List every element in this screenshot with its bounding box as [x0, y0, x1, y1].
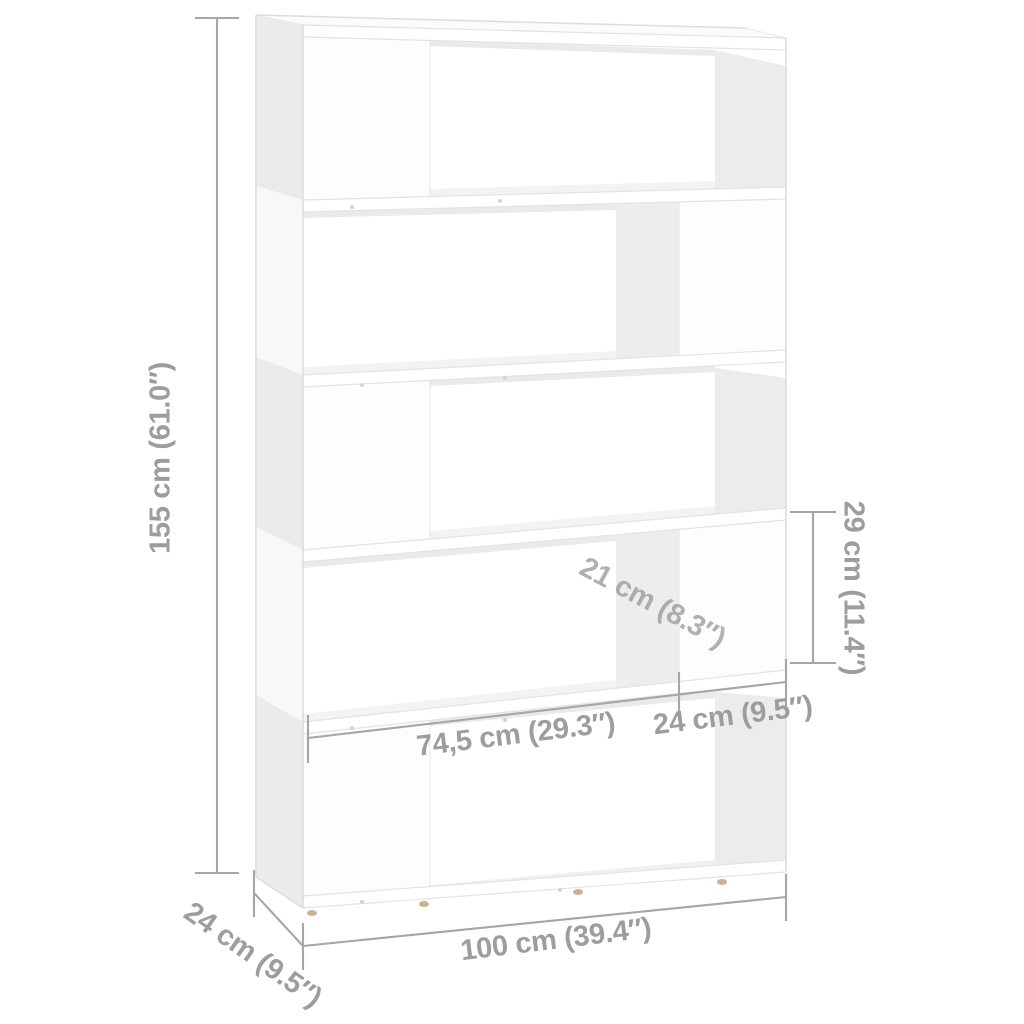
product-dimension-figure: 155 cm (61.0″) 24 cm (9.5″) 100 cm (39.4…: [0, 0, 1024, 1024]
dimension-depth-label: 24 cm (9.5″): [178, 896, 328, 1014]
bookcase-render: [256, 15, 786, 916]
dimension-height-line: [196, 18, 238, 873]
divider-panels: [303, 37, 786, 899]
left-side-panel: [256, 15, 303, 908]
right-side-panel: [715, 50, 786, 874]
dimension-height-label: 155 cm (61.0″): [145, 362, 177, 554]
dimension-inner-height-line: [791, 512, 835, 663]
product-dimension-image: 155 cm (61.0″) 24 cm (9.5″) 100 cm (39.4…: [0, 0, 1024, 1024]
dimension-inner-height-label: 29 cm (11.4″): [837, 501, 869, 675]
